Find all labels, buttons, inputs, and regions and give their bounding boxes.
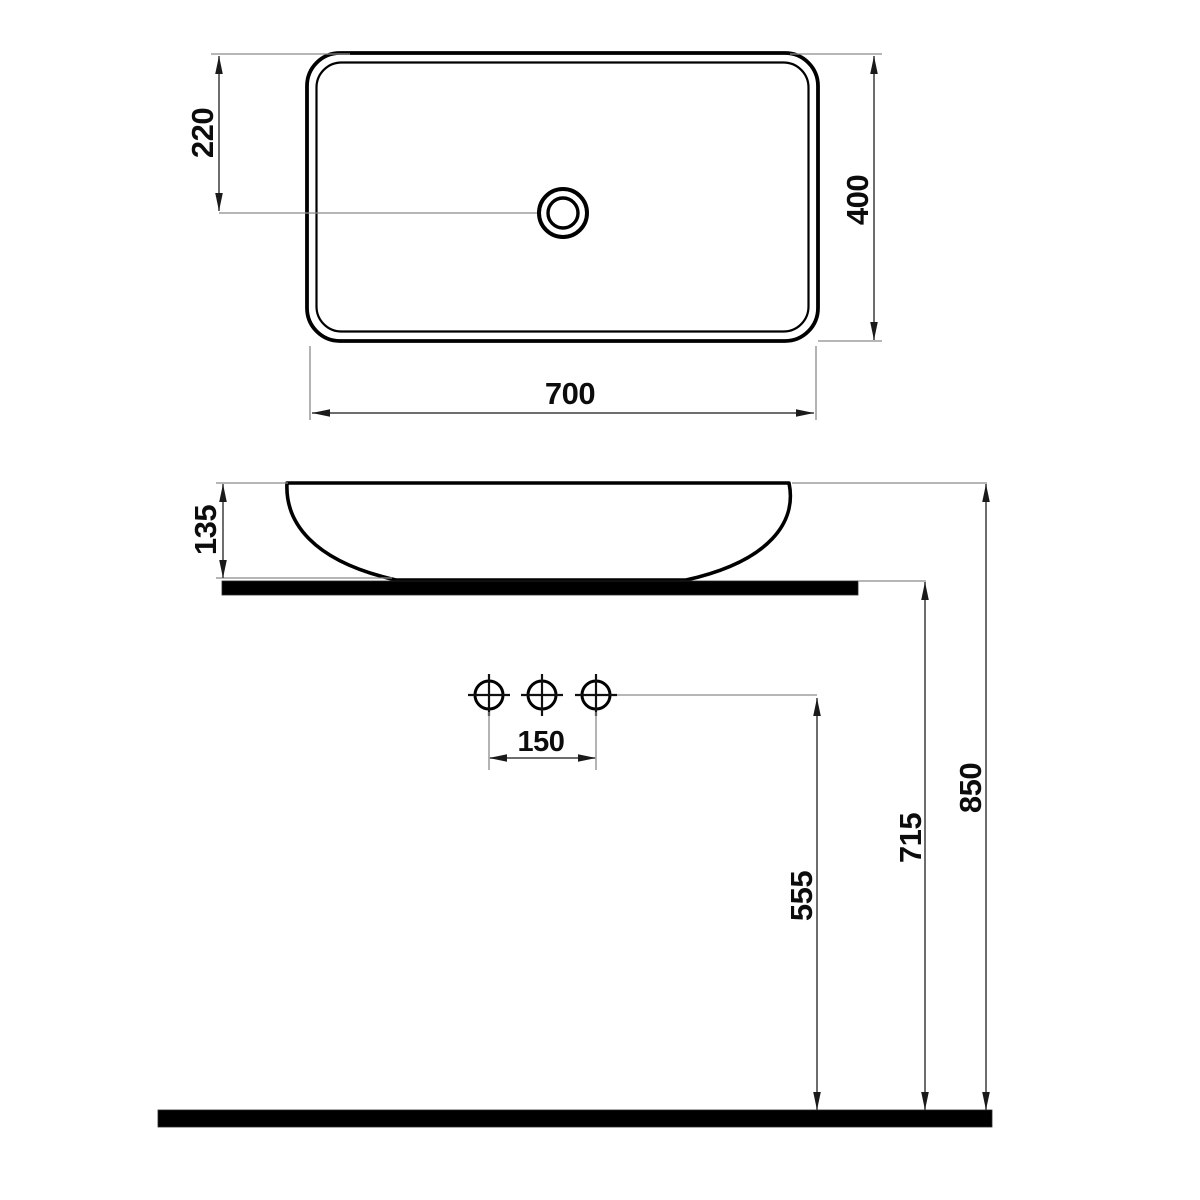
arrowhead-down [921, 1092, 929, 1110]
dim-label-faucet-height: 555 [784, 871, 819, 921]
dim-label-basin-width: 700 [545, 376, 595, 411]
side-view: 135 [158, 483, 992, 1127]
top-view: 220 400 700 [185, 53, 882, 420]
arrowhead-down [813, 1092, 821, 1110]
dim-label-basin-height: 135 [188, 505, 223, 555]
arrowhead-down [219, 560, 227, 578]
faucet-holes [468, 674, 617, 716]
arrowhead-up [813, 698, 821, 716]
dim-label-countertop-height: 715 [893, 813, 928, 863]
dim-hole-spacing: 150 [489, 712, 596, 770]
dim-drain-offset: 220 [185, 54, 350, 211]
arrowhead-left [312, 409, 330, 417]
floor [158, 1110, 992, 1127]
drain-outer-circle [539, 189, 587, 237]
dim-label-overall-height: 850 [953, 763, 988, 813]
dim-label-basin-depth: 400 [840, 175, 875, 225]
arrowhead-up [215, 56, 223, 74]
dim-overall-height: 850 [792, 483, 990, 1110]
arrowhead-up [982, 484, 990, 502]
dim-label-drain-offset: 220 [185, 108, 220, 158]
faucet-hole-2 [521, 674, 563, 716]
faucet-hole-1 [468, 674, 510, 716]
dim-countertop-height: 715 [858, 581, 929, 1110]
arrowhead-up [870, 56, 878, 74]
dim-basin-depth: 400 [790, 54, 882, 341]
faucet-hole-3 [575, 674, 617, 716]
basin-profile [287, 483, 790, 580]
dim-basin-width: 700 [310, 346, 816, 420]
dim-label-hole-spacing: 150 [518, 726, 565, 758]
washbasin-technical-drawing: 220 400 700 [0, 0, 1200, 1200]
dim-faucet-height: 555 [617, 695, 821, 1110]
arrowhead-up [921, 582, 929, 600]
countertop [222, 581, 858, 595]
drain-hole [539, 189, 587, 237]
arrowhead-down [982, 1092, 990, 1110]
arrowhead-right [578, 754, 596, 762]
arrowhead-right [796, 409, 814, 417]
arrowhead-down [215, 193, 223, 211]
arrowhead-up [219, 484, 227, 502]
arrowhead-down [870, 322, 878, 340]
drawing-page: 220 400 700 [0, 0, 1200, 1200]
arrowhead-left [489, 754, 507, 762]
